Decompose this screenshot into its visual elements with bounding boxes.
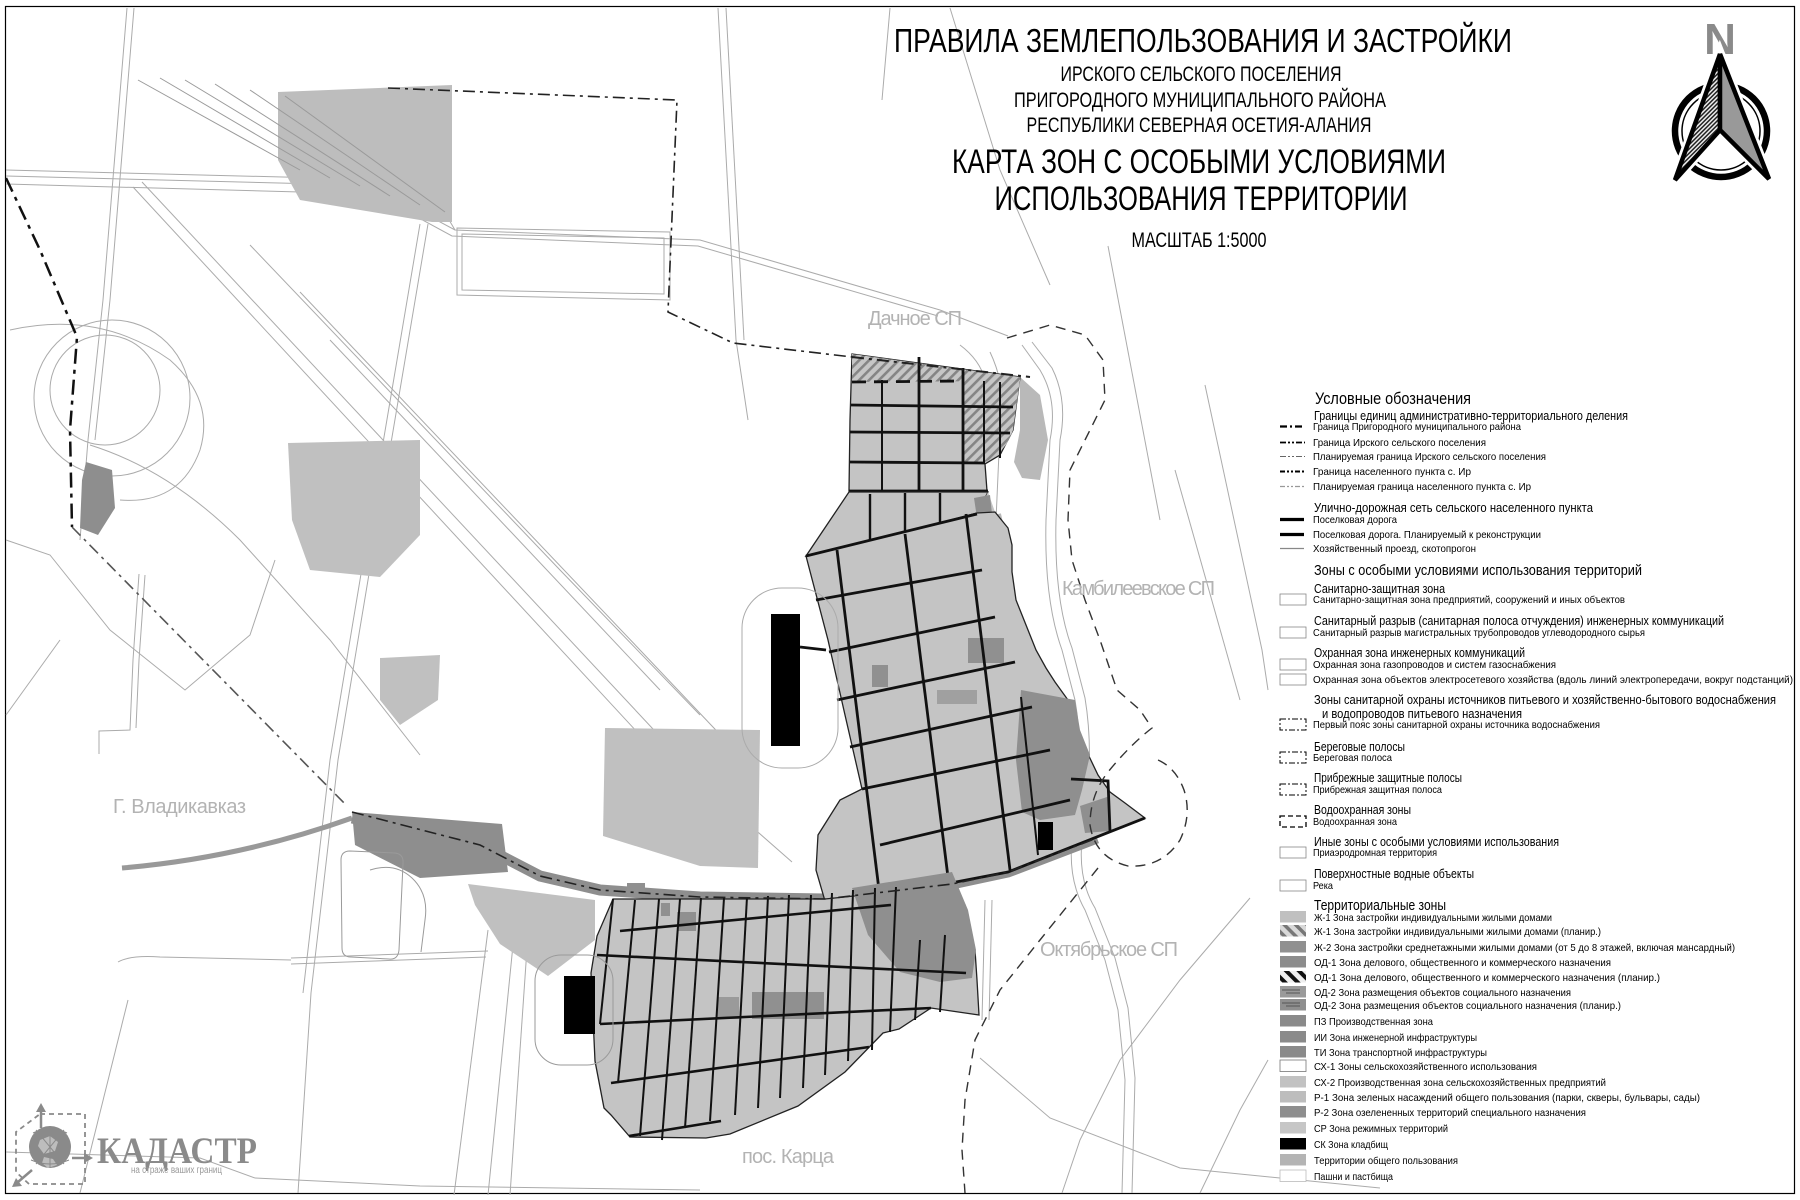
svg-text:Ж-1 Зона застройки индивидуаль: Ж-1 Зона застройки индивидуальными жилым… xyxy=(1314,912,1552,924)
svg-text:ПЗ Производственная зона: ПЗ Производственная зона xyxy=(1314,1016,1433,1028)
svg-text:Поверхностные водные объекты: Поверхностные водные объекты xyxy=(1314,867,1474,881)
svg-text:КАРТА ЗОН С ОСОБЫМИ УСЛОВИЯМИ: КАРТА ЗОН С ОСОБЫМИ УСЛОВИЯМИ xyxy=(952,143,1446,181)
svg-text:Зоны санитарной охраны источни: Зоны санитарной охраны источников питьев… xyxy=(1314,693,1776,707)
svg-text:СК Зона кладбищ: СК Зона кладбищ xyxy=(1314,1139,1388,1151)
svg-text:Г. Владикавказ: Г. Владикавказ xyxy=(113,796,246,818)
svg-text:ИИ Зона инженерной инфраструкт: ИИ Зона инженерной инфраструктуры xyxy=(1314,1032,1477,1044)
svg-text:Санитарный разрыв (санитарная: Санитарный разрыв (санитарная полоса отч… xyxy=(1314,614,1724,628)
svg-text:Р-2 Зона озелененных территори: Р-2 Зона озелененных территорий специаль… xyxy=(1314,1107,1586,1119)
svg-text:пос. Карца: пос. Карца xyxy=(742,1146,835,1168)
svg-text:на страже ваших границ: на страже ваших границ xyxy=(131,1165,222,1176)
svg-text:Охранная зона газопроводов и с: Охранная зона газопроводов и систем газо… xyxy=(1313,659,1556,671)
svg-text:ПРИГОРОДНОГО МУНИЦИПАЛЬНОГО РА: ПРИГОРОДНОГО МУНИЦИПАЛЬНОГО РАЙОНА xyxy=(1014,88,1386,112)
svg-text:Камбилеевское СП: Камбилеевское СП xyxy=(1062,578,1215,600)
svg-text:Пашни и пастбища: Пашни и пастбища xyxy=(1314,1171,1393,1183)
svg-text:МАСШТАБ 1:5000: МАСШТАБ 1:5000 xyxy=(1132,229,1267,252)
svg-text:ОД-1 Зона делового, общественн: ОД-1 Зона делового, общественного и комм… xyxy=(1314,957,1611,969)
svg-text:Водоохранная зоны: Водоохранная зоны xyxy=(1314,803,1411,817)
svg-text:Территории общего пользования: Территории общего пользования xyxy=(1314,1155,1458,1167)
svg-text:ОД-1 Зона делового, общественн: ОД-1 Зона делового, общественного и комм… xyxy=(1314,972,1660,984)
svg-text:Прибрежные защитные полосы: Прибрежные защитные полосы xyxy=(1314,771,1462,785)
svg-text:Граница населенного пункта с.: Граница населенного пункта с. Ир xyxy=(1313,466,1471,478)
svg-text:Планируемая граница Ирского се: Планируемая граница Ирского сельского по… xyxy=(1313,451,1546,463)
svg-text:Охранная зона объектов электро: Охранная зона объектов электросетевого х… xyxy=(1313,674,1793,686)
svg-text:Р-1 Зона зеленых насаждений об: Р-1 Зона зеленых насаждений общего польз… xyxy=(1314,1092,1700,1104)
svg-text:Планируемая граница населенног: Планируемая граница населенного пункта с… xyxy=(1313,481,1531,493)
svg-text:РЕСПУБЛИКИ СЕВЕРНАЯ ОСЕТИЯ-АЛА: РЕСПУБЛИКИ СЕВЕРНАЯ ОСЕТИЯ-АЛАНИЯ xyxy=(1027,114,1372,137)
svg-text:Санитарно-защитная зона предпр: Санитарно-защитная зона предприятий, соо… xyxy=(1313,594,1625,606)
svg-text:Дачное СП: Дачное СП xyxy=(868,308,962,330)
svg-text:ПРАВИЛА ЗЕМЛЕПОЛЬЗОВАНИЯ И ЗАС: ПРАВИЛА ЗЕМЛЕПОЛЬЗОВАНИЯ И ЗАСТРОЙКИ xyxy=(894,22,1512,59)
svg-text:Октябрьское СП: Октябрьское СП xyxy=(1040,939,1178,961)
svg-text:Условные обозначения: Условные обозначения xyxy=(1315,390,1471,408)
svg-text:Граница Ирского сельского посе: Граница Ирского сельского поселения xyxy=(1313,437,1486,449)
svg-text:ИСПОЛЬЗОВАНИЯ ТЕРРИТОРИИ: ИСПОЛЬЗОВАНИЯ ТЕРРИТОРИИ xyxy=(995,180,1408,218)
svg-text:СХ-2 Производственная зона сел: СХ-2 Производственная зона сельскохозяйс… xyxy=(1314,1077,1606,1089)
svg-text:Прибрежная защитная полоса: Прибрежная защитная полоса xyxy=(1313,784,1442,796)
svg-text:ИРСКОГО СЕЛЬСКОГО ПОСЕЛЕНИЯ: ИРСКОГО СЕЛЬСКОГО ПОСЕЛЕНИЯ xyxy=(1061,63,1342,86)
svg-text:Улично-дорожная сеть сельского: Улично-дорожная сеть сельского населенно… xyxy=(1314,501,1593,515)
svg-text:СХ-1 Зоны сельскохозяйственног: СХ-1 Зоны сельскохозяйственного использо… xyxy=(1314,1061,1537,1073)
svg-text:Охранная зона инженерных комму: Охранная зона инженерных коммуникаций xyxy=(1314,646,1525,660)
svg-text:Граница Пригородного муниципал: Граница Пригородного муниципального райо… xyxy=(1313,421,1521,433)
svg-text:Река: Река xyxy=(1313,880,1333,892)
svg-text:ОД-2 Зона размещения объектов: ОД-2 Зона размещения объектов социальног… xyxy=(1314,987,1571,999)
svg-text:ОД-2 Зона размещения объектов: ОД-2 Зона размещения объектов социальног… xyxy=(1314,1000,1621,1012)
svg-text:Поселковая дорога. Планируемый: Поселковая дорога. Планируемый к реконст… xyxy=(1313,529,1541,541)
svg-text:Зоны с особыми условиями испол: Зоны с особыми условиями использования т… xyxy=(1314,563,1642,579)
svg-text:Береговая полоса: Береговая полоса xyxy=(1313,752,1392,764)
svg-text:Хозяйственный проезд, скотопро: Хозяйственный проезд, скотопрогон xyxy=(1313,543,1476,555)
svg-text:Санитарный разрыв магистральны: Санитарный разрыв магистральных трубопро… xyxy=(1313,627,1645,639)
svg-text:Приаэродромная территория: Приаэродромная территория xyxy=(1313,847,1437,859)
svg-text:Первый пояс зоны санитарной ох: Первый пояс зоны санитарной охраны источ… xyxy=(1313,719,1600,731)
svg-text:Водоохранная зона: Водоохранная зона xyxy=(1313,816,1397,828)
svg-text:Ж-1 Зона застройки индивидуаль: Ж-1 Зона застройки индивидуальными жилым… xyxy=(1314,926,1601,938)
svg-text:СР Зона режимных территорий: СР Зона режимных территорий xyxy=(1314,1123,1448,1135)
svg-text:Ж-2 Зона застройки среднетажны: Ж-2 Зона застройки среднетажными жилыми … xyxy=(1314,942,1735,954)
svg-text:ТИ Зона транспортной инфрастру: ТИ Зона транспортной инфраструктуры xyxy=(1314,1047,1487,1059)
svg-text:Поселковая дорога: Поселковая дорога xyxy=(1313,514,1397,526)
